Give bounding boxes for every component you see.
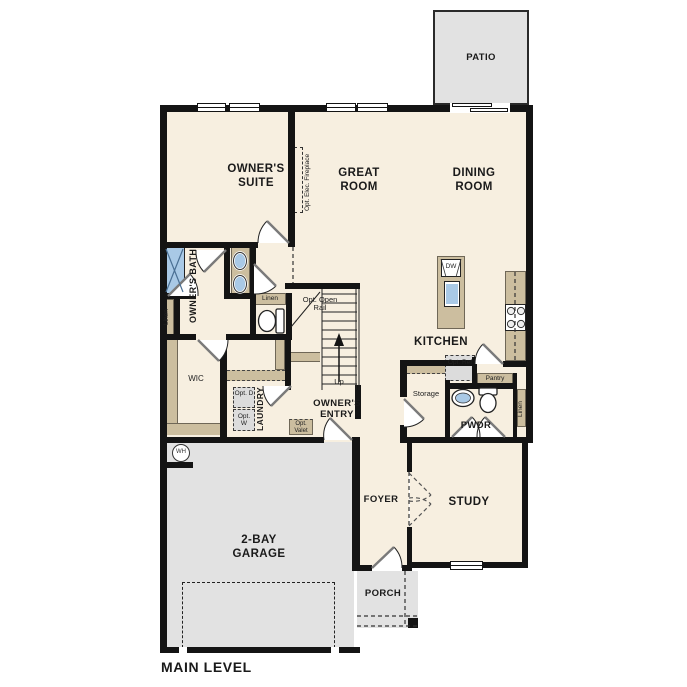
linen-pwdr-label: Linen — [517, 396, 526, 422]
sliding-door-panel-2 — [470, 108, 508, 112]
wall-study-left-2 — [407, 527, 412, 567]
wall-study-left-1 — [407, 443, 412, 472]
window-great-1 — [326, 103, 356, 112]
dw-label: DW — [441, 263, 461, 270]
wall-wh-stub — [160, 462, 193, 468]
wall-right — [526, 105, 533, 443]
wall-toilet-left — [250, 299, 256, 335]
kitchen-label: KITCHEN — [406, 336, 476, 350]
wall-storage-west-1 — [400, 360, 407, 397]
window-suite-1 — [197, 103, 226, 112]
wic-shelf-bottom — [167, 423, 220, 435]
linen-hall-label: Linen — [255, 295, 285, 302]
storage-label: Storage — [409, 390, 443, 398]
wall-wic-east — [220, 340, 227, 437]
pwdr-label: PWDR — [456, 420, 496, 431]
study-label: STUDY — [443, 496, 495, 510]
wall-toilet-right — [286, 293, 292, 340]
dining-room-label: DINING ROOM — [444, 167, 504, 194]
wall-study-bottom-2 — [483, 562, 528, 568]
owners-suite-label: OWNER'S SUITE — [216, 163, 296, 190]
owners-bath-label: OWNER'S BATH — [188, 246, 214, 326]
wic-label: WIC — [181, 375, 211, 384]
wall-hall-2 — [226, 334, 292, 340]
porch-post — [408, 618, 418, 628]
opt-washer-label: Opt. W — [234, 413, 254, 427]
pantry-label: Pantry — [479, 375, 511, 382]
fireplace-label: Opt. Elec. Fireplace — [304, 142, 314, 222]
island-sink-basin — [446, 284, 458, 304]
up-label: Up — [328, 378, 350, 386]
laundry-shelf — [227, 370, 285, 381]
open-rail-label: Opt. Open Rail — [296, 296, 344, 313]
wall-bath-1 — [224, 247, 230, 299]
garage-door-notch-right — [331, 647, 339, 653]
porch-label: PORCH — [363, 588, 403, 599]
window-suite-2 — [229, 103, 260, 112]
wall-garage-top — [160, 437, 324, 443]
laundry-label: LAUNDRY — [255, 383, 268, 435]
window-study — [450, 561, 483, 570]
wall-hall-1 — [160, 334, 196, 340]
opt-dryer-label: Opt. D — [234, 390, 254, 397]
stair-half-wall — [291, 352, 320, 362]
wall-garage-east — [352, 437, 360, 568]
range — [505, 304, 526, 331]
main-floor — [164, 109, 529, 443]
owners-entry-label: OWNER'S ENTRY — [308, 398, 366, 420]
great-room-label: GREAT ROOM — [329, 167, 389, 194]
shower — [164, 247, 185, 294]
foyer-label: FOYER — [361, 494, 401, 505]
water-heater-label: WH — [176, 449, 186, 455]
garage-door-notch-left — [179, 647, 187, 653]
sliding-door-panel-1 — [452, 103, 492, 107]
wall-counter-stub — [503, 361, 526, 367]
wall-study-top — [407, 437, 528, 443]
wall-left — [160, 105, 167, 653]
vanity-counter — [231, 247, 250, 297]
wall-study-bottom-1 — [407, 562, 450, 568]
wic-shelf-left — [167, 340, 178, 432]
wall-stair-west — [285, 338, 291, 390]
window-great-2 — [357, 103, 388, 112]
opt-ref-label: Opt. Ref — [447, 359, 473, 366]
linen-bath-label: Linen — [163, 302, 173, 332]
patio-label: PATIO — [446, 52, 516, 63]
wall-study-right — [522, 443, 528, 567]
main-level-title: MAIN LEVEL — [161, 659, 281, 676]
wall-garage-bottom — [160, 647, 360, 653]
hall-closet-column — [275, 338, 285, 370]
garage-label: 2-BAY GARAGE — [219, 534, 299, 561]
floor-plan: WH — [0, 0, 687, 687]
wall-storage-west-2 — [400, 425, 407, 443]
wall-bath-2 — [250, 247, 256, 299]
garage-door-outline — [182, 582, 335, 648]
wall-foyer-bottom-left — [352, 565, 372, 571]
opt-valet-label: Opt. Valet — [290, 421, 312, 434]
water-heater: WH — [172, 444, 190, 462]
wall-pwdr-top — [450, 383, 517, 389]
wall-stair-top — [285, 283, 360, 289]
